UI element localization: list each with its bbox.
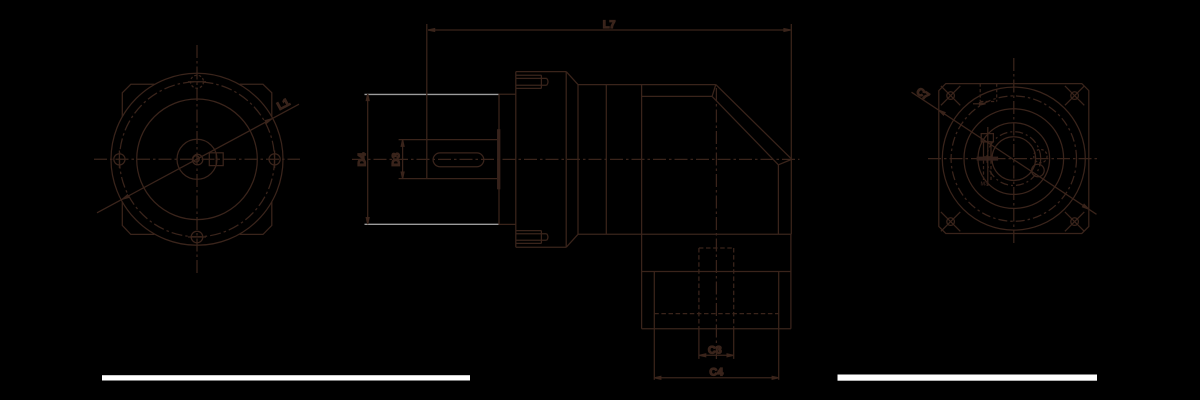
svg-text:C3: C3 (708, 344, 722, 356)
svg-text:C4: C4 (709, 367, 724, 379)
svg-text:M3: M3 (981, 182, 989, 188)
svg-text:L7: L7 (603, 19, 616, 31)
